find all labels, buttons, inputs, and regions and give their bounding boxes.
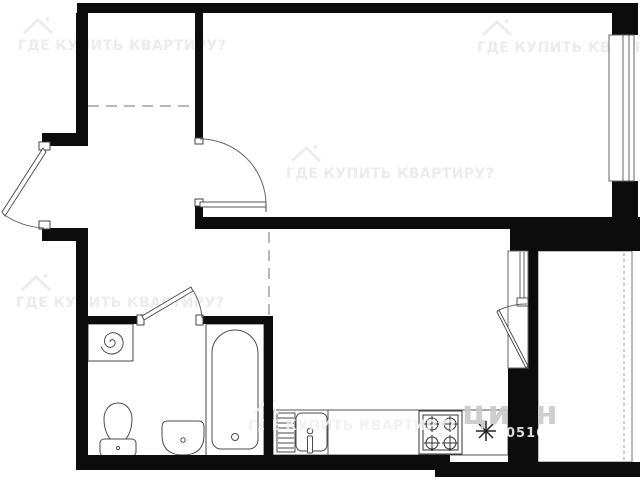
door-leaf	[2, 148, 46, 216]
door-swing-arc	[192, 289, 202, 318]
bathroom-door	[137, 287, 203, 325]
door-leaf	[200, 202, 266, 207]
listing-id-watermark: 0516	[506, 427, 546, 440]
openings-layer	[0, 0, 640, 480]
door-jamb	[39, 142, 50, 150]
door-swing-arc	[3, 214, 44, 228]
living-room-door	[195, 138, 266, 212]
apartment-floor-plan: ГДЕ КУПИТЬ КВАРТИРУ? ГДЕ КУПИТЬ КВАРТИРУ…	[0, 0, 640, 480]
door-leaf	[142, 287, 193, 320]
door-swing-arc	[200, 139, 266, 205]
entrance-door	[2, 142, 50, 229]
living-room-window	[609, 35, 634, 181]
